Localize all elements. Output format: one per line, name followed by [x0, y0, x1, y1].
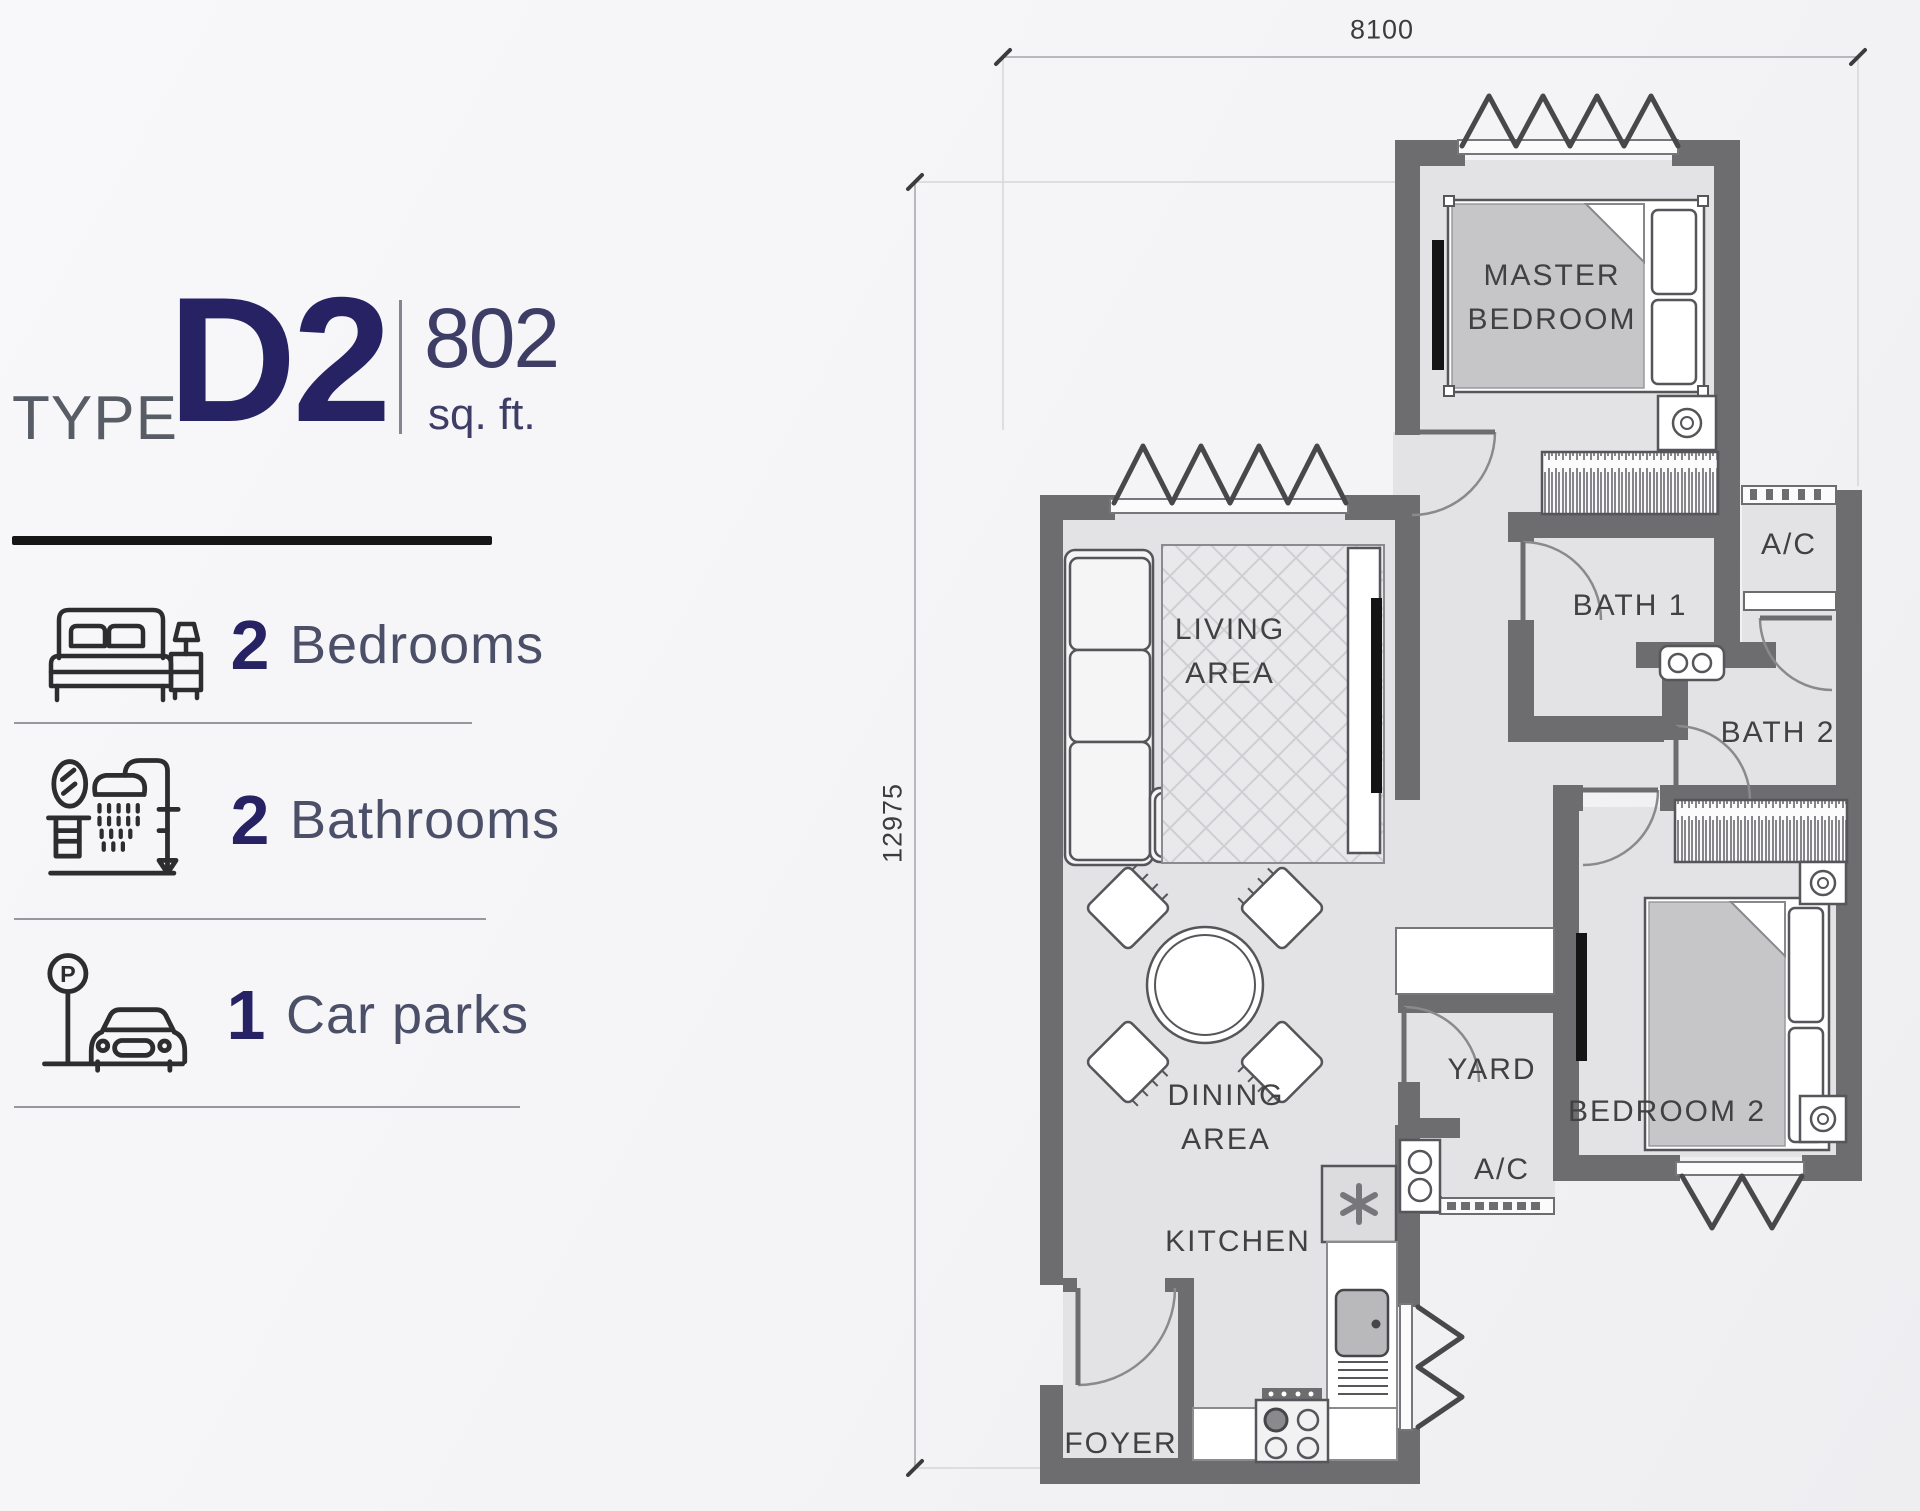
room-label-bedroom2: BEDROOM 2 [1568, 1090, 1766, 1134]
living-area-window [1114, 446, 1346, 503]
kitchen-window [1418, 1307, 1462, 1427]
ac-vent-lower [1440, 1198, 1554, 1214]
washing-machine [1400, 1140, 1440, 1212]
stove [1256, 1388, 1328, 1462]
room-label-master-bedroom: MASTER BEDROOM [1467, 254, 1636, 342]
bedroom2-wardrobe [1675, 800, 1847, 862]
room-label-ac-lower: A/C [1474, 1148, 1530, 1192]
living-tv-console [1348, 548, 1382, 853]
master-bedroom-window [1462, 96, 1678, 146]
kitchen-counter-right [1327, 1242, 1397, 1410]
washbasin [1660, 646, 1724, 680]
room-label-living-area: LIVING AREA [1175, 608, 1285, 696]
ac-upper-ledge [1744, 592, 1836, 610]
room-label-bath2: BATH 2 [1721, 711, 1836, 755]
yard-counter [1396, 928, 1554, 994]
ac-vent-upper [1742, 486, 1836, 504]
master-tv [1432, 240, 1444, 370]
floor-plan-page: TYPE D2 802 sq. ft. 2 Bedrooms [0, 0, 1920, 1511]
room-label-bath1: BATH 1 [1573, 584, 1688, 628]
master-nightstand [1658, 396, 1716, 450]
dimension-width: 8100 [1350, 15, 1414, 46]
dimension-height: 12975 [878, 783, 909, 863]
floor-plan-graphics [0, 0, 1920, 1511]
room-label-kitchen: KITCHEN [1165, 1220, 1311, 1264]
bedroom2-tv [1576, 933, 1587, 1061]
room-label-dining-area: DINING AREA [1168, 1074, 1285, 1162]
fridge [1322, 1166, 1396, 1242]
bedroom2-window [1682, 1176, 1802, 1228]
room-label-ac-upper: A/C [1761, 523, 1817, 567]
master-wardrobe [1542, 452, 1718, 514]
room-label-foyer: FOYER [1064, 1422, 1177, 1466]
dining-table [1147, 927, 1263, 1043]
room-label-yard: YARD [1447, 1048, 1536, 1092]
